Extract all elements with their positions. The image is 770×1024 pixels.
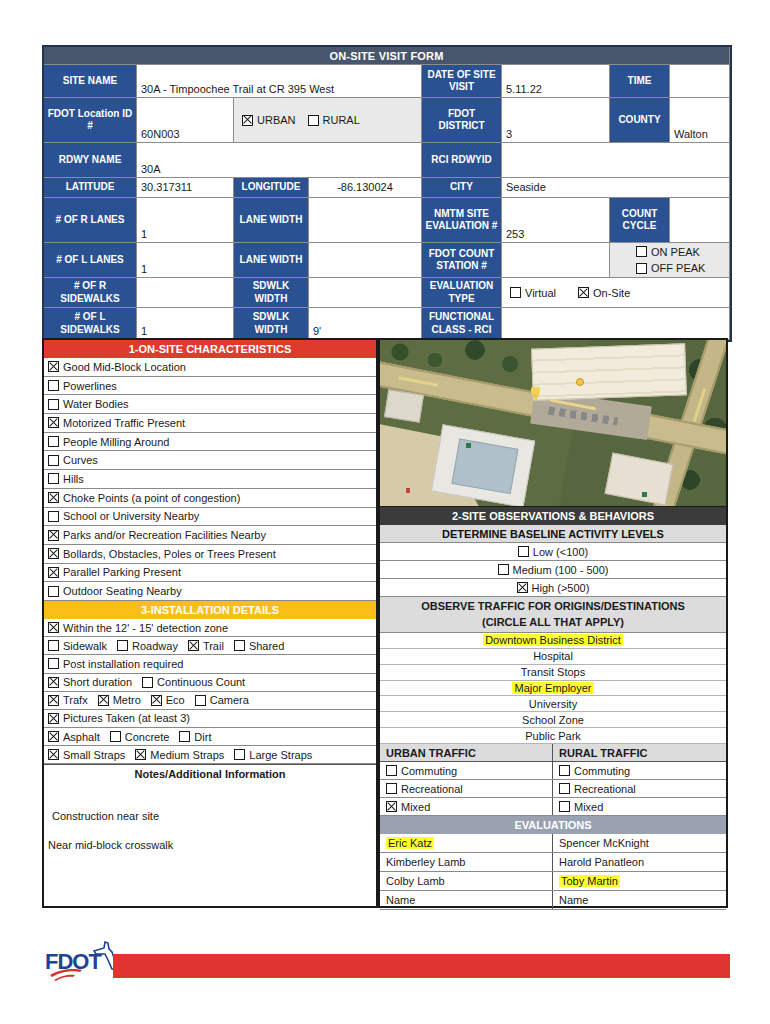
characteristic-row[interactable]: People Milling Around: [44, 433, 376, 452]
rural-option[interactable]: RURAL: [308, 114, 360, 126]
rci-rdwyid-label: RCI RDWYID: [422, 143, 502, 178]
notes-title: Notes/Additional Information: [44, 768, 376, 780]
r-lanes-field[interactable]: 1: [137, 198, 234, 243]
destination-label: University: [529, 698, 577, 710]
checkbox-label: Medium (100 - 500): [513, 564, 609, 576]
evaluator-name: Colby Lamb: [386, 875, 445, 887]
onsite-option[interactable]: On-Site: [578, 287, 630, 299]
evaluator-name-field[interactable]: Toby Martin: [553, 872, 726, 890]
checkbox-label: Curves: [63, 454, 98, 466]
destinations-list: Downtown Business District Hospital Tran…: [380, 633, 726, 744]
functional-class-label: FUNCTIONAL CLASS - RCI: [422, 308, 502, 340]
characteristic-row[interactable]: Bollards, Obstacles, Poles or Trees Pres…: [44, 545, 376, 564]
checkbox-label: Choke Points (a point of congestion): [63, 492, 240, 504]
checkbox-label: Mixed: [401, 801, 430, 813]
sdwlk-width-r-label: SDWLK WIDTH: [234, 278, 309, 308]
longitude-label: LONGITUDE: [234, 178, 309, 198]
sdwlk-width-l-label: SDWLK WIDTH: [234, 308, 309, 340]
r-sidewalks-label: # OF R SIDEWALKS: [44, 278, 137, 308]
traffic-row: Recreational Recreational: [380, 780, 726, 798]
virtual-option-label: Virtual: [525, 287, 556, 299]
rural-traffic-header: RURAL TRAFFIC: [553, 744, 726, 761]
map-green-marker-icon: [642, 492, 647, 497]
r-lanes-label: # OF R LANES: [44, 198, 137, 243]
left-column: 1-ON-SITE CHARACTERISTICS Good Mid-Block…: [42, 338, 378, 908]
observe-traffic-subtitle: (CIRCLE ALL THAT APPLY): [482, 615, 624, 631]
date-of-visit-field[interactable]: 5.11.22: [502, 65, 610, 98]
checkbox[interactable]: [188, 640, 199, 651]
checkbox-label: Medium Straps: [150, 749, 224, 761]
checkbox-label: Sidewalk: [63, 640, 107, 652]
checkbox[interactable]: [142, 677, 153, 688]
install-row[interactable]: Small Straps Medium Straps Large Straps: [44, 746, 376, 764]
checkbox-label: Roadway: [132, 640, 178, 652]
characteristic-row[interactable]: Parallel Parking Present: [44, 564, 376, 583]
checkbox[interactable]: [48, 695, 59, 706]
checkbox[interactable]: [48, 417, 59, 428]
checkbox-label: Within the 12' - 15' detection zone: [63, 622, 228, 634]
baseline-activity-header: DETERMINE BASELINE ACTIVITY LEVELS: [380, 525, 726, 543]
destination-label: Major Employer: [512, 682, 593, 694]
l-sidewalks-label: # OF L SIDEWALKS: [44, 308, 137, 340]
evaluator-name: Name: [559, 894, 588, 906]
lane-width-r-label: LANE WIDTH: [234, 198, 309, 243]
checkbox-label: Short duration: [63, 676, 132, 688]
evaluator-name: Eric Katz: [386, 837, 434, 849]
evaluation-type-label: EVALUATION TYPE: [422, 278, 502, 308]
evaluator-name-field[interactable]: Harold Panatleon: [553, 853, 726, 871]
form-title: ON-SITE VISIT FORM: [44, 47, 730, 65]
characteristic-row[interactable]: Curves: [44, 451, 376, 470]
fdot-district-label: FDOT DISTRICT: [422, 98, 502, 143]
checkbox-label: Metro: [113, 694, 141, 706]
checkbox[interactable]: [195, 695, 206, 706]
destination-item[interactable]: Major Employer: [380, 681, 726, 697]
notes-line: Near mid-block crosswalk: [48, 839, 376, 851]
notes-box[interactable]: Notes/Additional Information Constructio…: [44, 764, 376, 906]
checkbox[interactable]: [48, 677, 59, 688]
city-field[interactable]: Seaside: [502, 178, 730, 198]
evaluator-row: Name Name: [380, 891, 726, 910]
observe-traffic-title: OBSERVE TRAFFIC FOR ORIGINS/DESTINATIONS: [421, 599, 685, 615]
install-row[interactable]: Post installation required: [44, 655, 376, 673]
nmtm-site-eval-field[interactable]: 253: [502, 198, 610, 243]
characteristic-row[interactable]: Motorized Traffic Present: [44, 414, 376, 433]
destination-label: Transit Stops: [521, 666, 585, 678]
characteristic-row[interactable]: Good Mid-Block Location: [44, 358, 376, 377]
urban-traffic-header: URBAN TRAFFIC: [380, 744, 553, 761]
evaluator-name: Toby Martin: [559, 875, 620, 887]
evaluator-name-field[interactable]: Name: [553, 891, 726, 909]
checkbox[interactable]: [48, 567, 59, 578]
rdwy-name-field[interactable]: 30A: [137, 143, 422, 178]
evaluations-header: EVALUATIONS: [380, 816, 726, 834]
fdot-logo: FDOT: [44, 939, 118, 987]
site-visit-form-table: ON-SITE VISIT FORM SITE NAME 30A - Timpo…: [42, 45, 732, 342]
urban-traffic-cell[interactable]: Mixed: [380, 798, 553, 815]
lane-width-l-field[interactable]: [309, 243, 422, 278]
map-red-marker-icon: [406, 488, 410, 493]
checkbox-label: People Milling Around: [63, 436, 169, 448]
checkbox[interactable]: [48, 586, 59, 597]
evaluator-name: Spencer McKnight: [559, 837, 649, 849]
characteristic-row[interactable]: Hills: [44, 470, 376, 489]
evaluator-name-field[interactable]: Name: [380, 891, 553, 909]
checkbox[interactable]: [48, 731, 59, 742]
l-sidewalks-field[interactable]: 1: [137, 308, 234, 340]
checkbox-label: Recreational: [574, 783, 636, 795]
section2-header: 2-SITE OBSERVATIONS & BEHAVIORS: [380, 507, 726, 525]
checkbox[interactable]: [518, 546, 529, 557]
urban-option-label: URBAN: [257, 114, 296, 126]
checkbox[interactable]: [48, 399, 59, 410]
evaluator-row: Eric Katz Spencer McKnight: [380, 834, 726, 853]
checkbox[interactable]: [110, 731, 121, 742]
map-marker-icon: [576, 378, 584, 386]
checkbox[interactable]: [234, 640, 245, 651]
checkbox[interactable]: [48, 658, 59, 669]
checkbox[interactable]: [48, 713, 59, 724]
fdot-location-id-label: FDOT Location ID #: [44, 98, 137, 143]
logo-swoosh: [54, 975, 75, 981]
l-lanes-label: # OF L LANES: [44, 243, 137, 278]
time-field[interactable]: [670, 65, 730, 98]
rci-rdwyid-field[interactable]: [502, 143, 730, 178]
fdot-count-station-label: FDOT COUNT STATION #: [422, 243, 502, 278]
checkbox[interactable]: [48, 749, 59, 760]
rural-option-label: RURAL: [323, 114, 360, 126]
longitude-field[interactable]: -86.130024: [309, 178, 422, 198]
evaluation-type-field: Virtual On-Site: [502, 278, 730, 308]
lane-width-l-label: LANE WIDTH: [234, 243, 309, 278]
evaluator-name-field[interactable]: Colby Lamb: [380, 872, 553, 890]
install-row[interactable]: Sidewalk Roadway Trail Shared: [44, 637, 376, 655]
activity-level-row[interactable]: Medium (100 - 500): [380, 561, 726, 579]
checkbox-label: Large Straps: [249, 749, 312, 761]
observe-traffic-header: OBSERVE TRAFFIC FOR ORIGINS/DESTINATIONS…: [380, 597, 726, 633]
checkbox-label: Shared: [249, 640, 284, 652]
off-peak-option[interactable]: OFF PEAK: [636, 260, 705, 277]
checkbox[interactable]: [517, 582, 528, 593]
checkbox-label: Continuous Count: [157, 676, 245, 688]
install-row[interactable]: Within the 12' - 15' detection zone: [44, 619, 376, 637]
destination-item[interactable]: University: [380, 696, 726, 712]
checkbox-label: Parallel Parking Present: [63, 566, 181, 578]
checkbox-label: High (>500): [532, 582, 590, 594]
traffic-header-row: URBAN TRAFFIC RURAL TRAFFIC: [380, 744, 726, 762]
evaluator-name-field[interactable]: Eric Katz: [380, 834, 553, 852]
section1-header: 1-ON-SITE CHARACTERISTICS: [44, 340, 376, 358]
time-label: TIME: [610, 65, 670, 98]
section3-header: 3-INSTALLATION DETAILS: [44, 601, 376, 619]
checkbox[interactable]: [48, 361, 59, 372]
characteristic-row[interactable]: School or University Nearby: [44, 508, 376, 527]
map-pin-icon: [532, 392, 540, 401]
traffic-row: Mixed Mixed: [380, 798, 726, 816]
latitude-label: LATITUDE: [44, 178, 137, 198]
checkbox[interactable]: [48, 492, 59, 503]
off-peak-label: OFF PEAK: [651, 260, 705, 277]
traffic-row: Commuting Commuting: [380, 762, 726, 780]
fdot-location-id-field[interactable]: 60N003: [137, 98, 234, 143]
evaluator-name: Kimberley Lamb: [386, 856, 465, 868]
destination-label: Downtown Business District: [483, 634, 623, 646]
checkbox[interactable]: [151, 695, 162, 706]
latitude-field[interactable]: 30.317311: [137, 178, 234, 198]
sdwlk-width-r-field[interactable]: [309, 278, 422, 308]
checkbox-label: Post installation required: [63, 658, 183, 670]
checkbox-label: Asphalt: [63, 731, 100, 743]
checkbox[interactable]: [117, 640, 128, 651]
checkbox-label: Mixed: [574, 801, 603, 813]
checkbox-label: Parks and/or Recreation Facilities Nearb…: [63, 529, 266, 541]
checkbox-label: Eco: [166, 694, 185, 706]
checkbox-label: Commuting: [401, 765, 457, 777]
city-label: CITY: [422, 178, 502, 198]
checkbox[interactable]: [386, 765, 397, 776]
checkbox-label: Hills: [63, 473, 84, 485]
checkbox[interactable]: [98, 695, 109, 706]
fdot-district-field[interactable]: 3: [502, 98, 610, 143]
rural-traffic-cell[interactable]: Recreational: [553, 780, 726, 797]
on-peak-label: ON PEAK: [651, 244, 700, 261]
aerial-photo: [380, 340, 726, 507]
checkbox[interactable]: [234, 749, 245, 760]
checkbox[interactable]: [559, 801, 570, 812]
characteristic-row[interactable]: Powerlines: [44, 377, 376, 396]
onsite-option-label: On-Site: [593, 287, 630, 299]
checkbox-label: Pictures Taken (at least 3): [63, 712, 190, 724]
rural-traffic-cell[interactable]: Mixed: [553, 798, 726, 815]
checkbox[interactable]: [48, 530, 59, 541]
characteristic-row[interactable]: Parks and/or Recreation Facilities Nearb…: [44, 526, 376, 545]
urban-checkbox[interactable]: [242, 115, 253, 126]
fdot-count-station-field[interactable]: [502, 243, 610, 278]
destination-label: School Zone: [522, 714, 584, 726]
evaluator-name: Name: [386, 894, 415, 906]
on-peak-checkbox[interactable]: [636, 246, 647, 257]
checkbox[interactable]: [135, 749, 146, 760]
activity-level-row[interactable]: High (>500): [380, 579, 726, 597]
checkbox-label: Water Bodies: [63, 398, 129, 410]
evaluator-row: Colby Lamb Toby Martin: [380, 872, 726, 891]
install-row[interactable]: Trafx Metro Eco Camera: [44, 692, 376, 710]
date-of-visit-label: DATE OF SITE VISIT: [422, 65, 502, 98]
footer-red-bar: [113, 954, 730, 978]
destination-item[interactable]: Hospital: [380, 649, 726, 665]
nmtm-site-eval-label: NMTM SITE EVALUATION #: [422, 198, 502, 243]
checkbox-label: Small Straps: [63, 749, 125, 761]
checkbox-label: Good Mid-Block Location: [63, 361, 186, 373]
checkbox[interactable]: [559, 765, 570, 776]
functional-class-field[interactable]: [502, 308, 730, 340]
destination-item[interactable]: School Zone: [380, 712, 726, 728]
checkbox-label: Powerlines: [63, 380, 117, 392]
checkbox[interactable]: [48, 548, 59, 559]
count-cycle-label: COUNT CYCLE: [610, 198, 670, 243]
checkbox-label: Recreational: [401, 783, 463, 795]
county-field[interactable]: Walton: [670, 98, 730, 143]
checkbox-label: Trail: [203, 640, 224, 652]
onsite-checkbox[interactable]: [578, 287, 589, 298]
checkbox-label: Outdoor Seating Nearby: [63, 585, 182, 597]
checkbox-label: Dirt: [194, 731, 211, 743]
checkbox-label: Concrete: [125, 731, 170, 743]
urban-rural-field: URBAN RURAL: [234, 98, 422, 143]
site-name-label: SITE NAME: [44, 65, 137, 98]
virtual-option[interactable]: Virtual: [510, 287, 556, 299]
checkbox[interactable]: [498, 564, 509, 575]
virtual-checkbox[interactable]: [510, 287, 521, 298]
checkbox-label: Commuting: [574, 765, 630, 777]
aerial-house-roof: [451, 438, 518, 494]
county-label: COUNTY: [610, 98, 670, 143]
aerial-house: [384, 389, 424, 422]
sdwlk-width-l-field[interactable]: 9': [309, 308, 422, 340]
count-cycle-field[interactable]: [670, 198, 730, 243]
checkbox[interactable]: [559, 783, 570, 794]
checkbox[interactable]: [48, 511, 59, 522]
checkbox-label: Trafx: [63, 694, 88, 706]
characteristic-row[interactable]: Water Bodies: [44, 395, 376, 414]
destination-item[interactable]: Transit Stops: [380, 665, 726, 681]
page: ON-SITE VISIT FORM SITE NAME 30A - Timpo…: [0, 0, 770, 1024]
checkbox-label: Motorized Traffic Present: [63, 417, 185, 429]
aerial-large-building: [531, 343, 687, 400]
destination-item[interactable]: Public Park: [380, 728, 726, 744]
checkbox[interactable]: [386, 783, 397, 794]
l-lanes-field[interactable]: 1: [137, 243, 234, 278]
install-row[interactable]: Short duration Continuous Count: [44, 674, 376, 692]
checkbox-label: Bollards, Obstacles, Poles or Trees Pres…: [63, 548, 276, 560]
rural-traffic-cell[interactable]: Commuting: [553, 762, 726, 779]
checkbox[interactable]: [48, 436, 59, 447]
checkbox[interactable]: [48, 473, 59, 484]
off-peak-checkbox[interactable]: [636, 263, 647, 274]
install-row[interactable]: Pictures Taken (at least 3): [44, 710, 376, 728]
peak-field: ON PEAK OFF PEAK: [610, 243, 730, 278]
lane-width-r-field[interactable]: [309, 198, 422, 243]
evaluator-name-field[interactable]: Spencer McKnight: [553, 834, 726, 852]
rural-checkbox[interactable]: [308, 115, 319, 126]
evaluator-name: Harold Panatleon: [559, 856, 644, 868]
checkbox-label: Camera: [210, 694, 249, 706]
urban-option[interactable]: URBAN: [242, 114, 296, 126]
characteristic-row[interactable]: Choke Points (a point of congestion): [44, 489, 376, 508]
checkbox[interactable]: [48, 640, 59, 651]
on-peak-option[interactable]: ON PEAK: [636, 244, 700, 261]
destination-label: Public Park: [525, 730, 581, 742]
checkbox[interactable]: [48, 455, 59, 466]
checkbox[interactable]: [48, 380, 59, 391]
checkbox[interactable]: [48, 622, 59, 633]
map-green-marker-icon: [466, 443, 471, 448]
evaluator-name-field[interactable]: Kimberley Lamb: [380, 853, 553, 871]
r-sidewalks-field[interactable]: [137, 278, 234, 308]
evaluator-row: Kimberley Lamb Harold Panatleon: [380, 853, 726, 872]
urban-traffic-cell[interactable]: Commuting: [380, 762, 553, 779]
install-row[interactable]: Asphalt Concrete Dirt: [44, 728, 376, 746]
characteristic-row[interactable]: Outdoor Seating Nearby: [44, 582, 376, 601]
urban-traffic-cell[interactable]: Recreational: [380, 780, 553, 797]
site-name-field[interactable]: 30A - Timpoochee Trail at CR 395 West: [137, 65, 422, 98]
checkbox[interactable]: [386, 801, 397, 812]
activity-level-row[interactable]: Low (<100): [380, 543, 726, 561]
right-column: 2-SITE OBSERVATIONS & BEHAVIORS DETERMIN…: [378, 338, 728, 908]
rdwy-name-label: RDWY NAME: [44, 143, 137, 178]
checkbox[interactable]: [179, 731, 190, 742]
destination-label: Hospital: [533, 650, 573, 662]
checkbox-label: School or University Nearby: [63, 510, 199, 522]
destination-item[interactable]: Downtown Business District: [380, 633, 726, 649]
notes-line: Construction near site: [52, 810, 376, 822]
checkbox-label: Low (<100): [533, 546, 588, 558]
